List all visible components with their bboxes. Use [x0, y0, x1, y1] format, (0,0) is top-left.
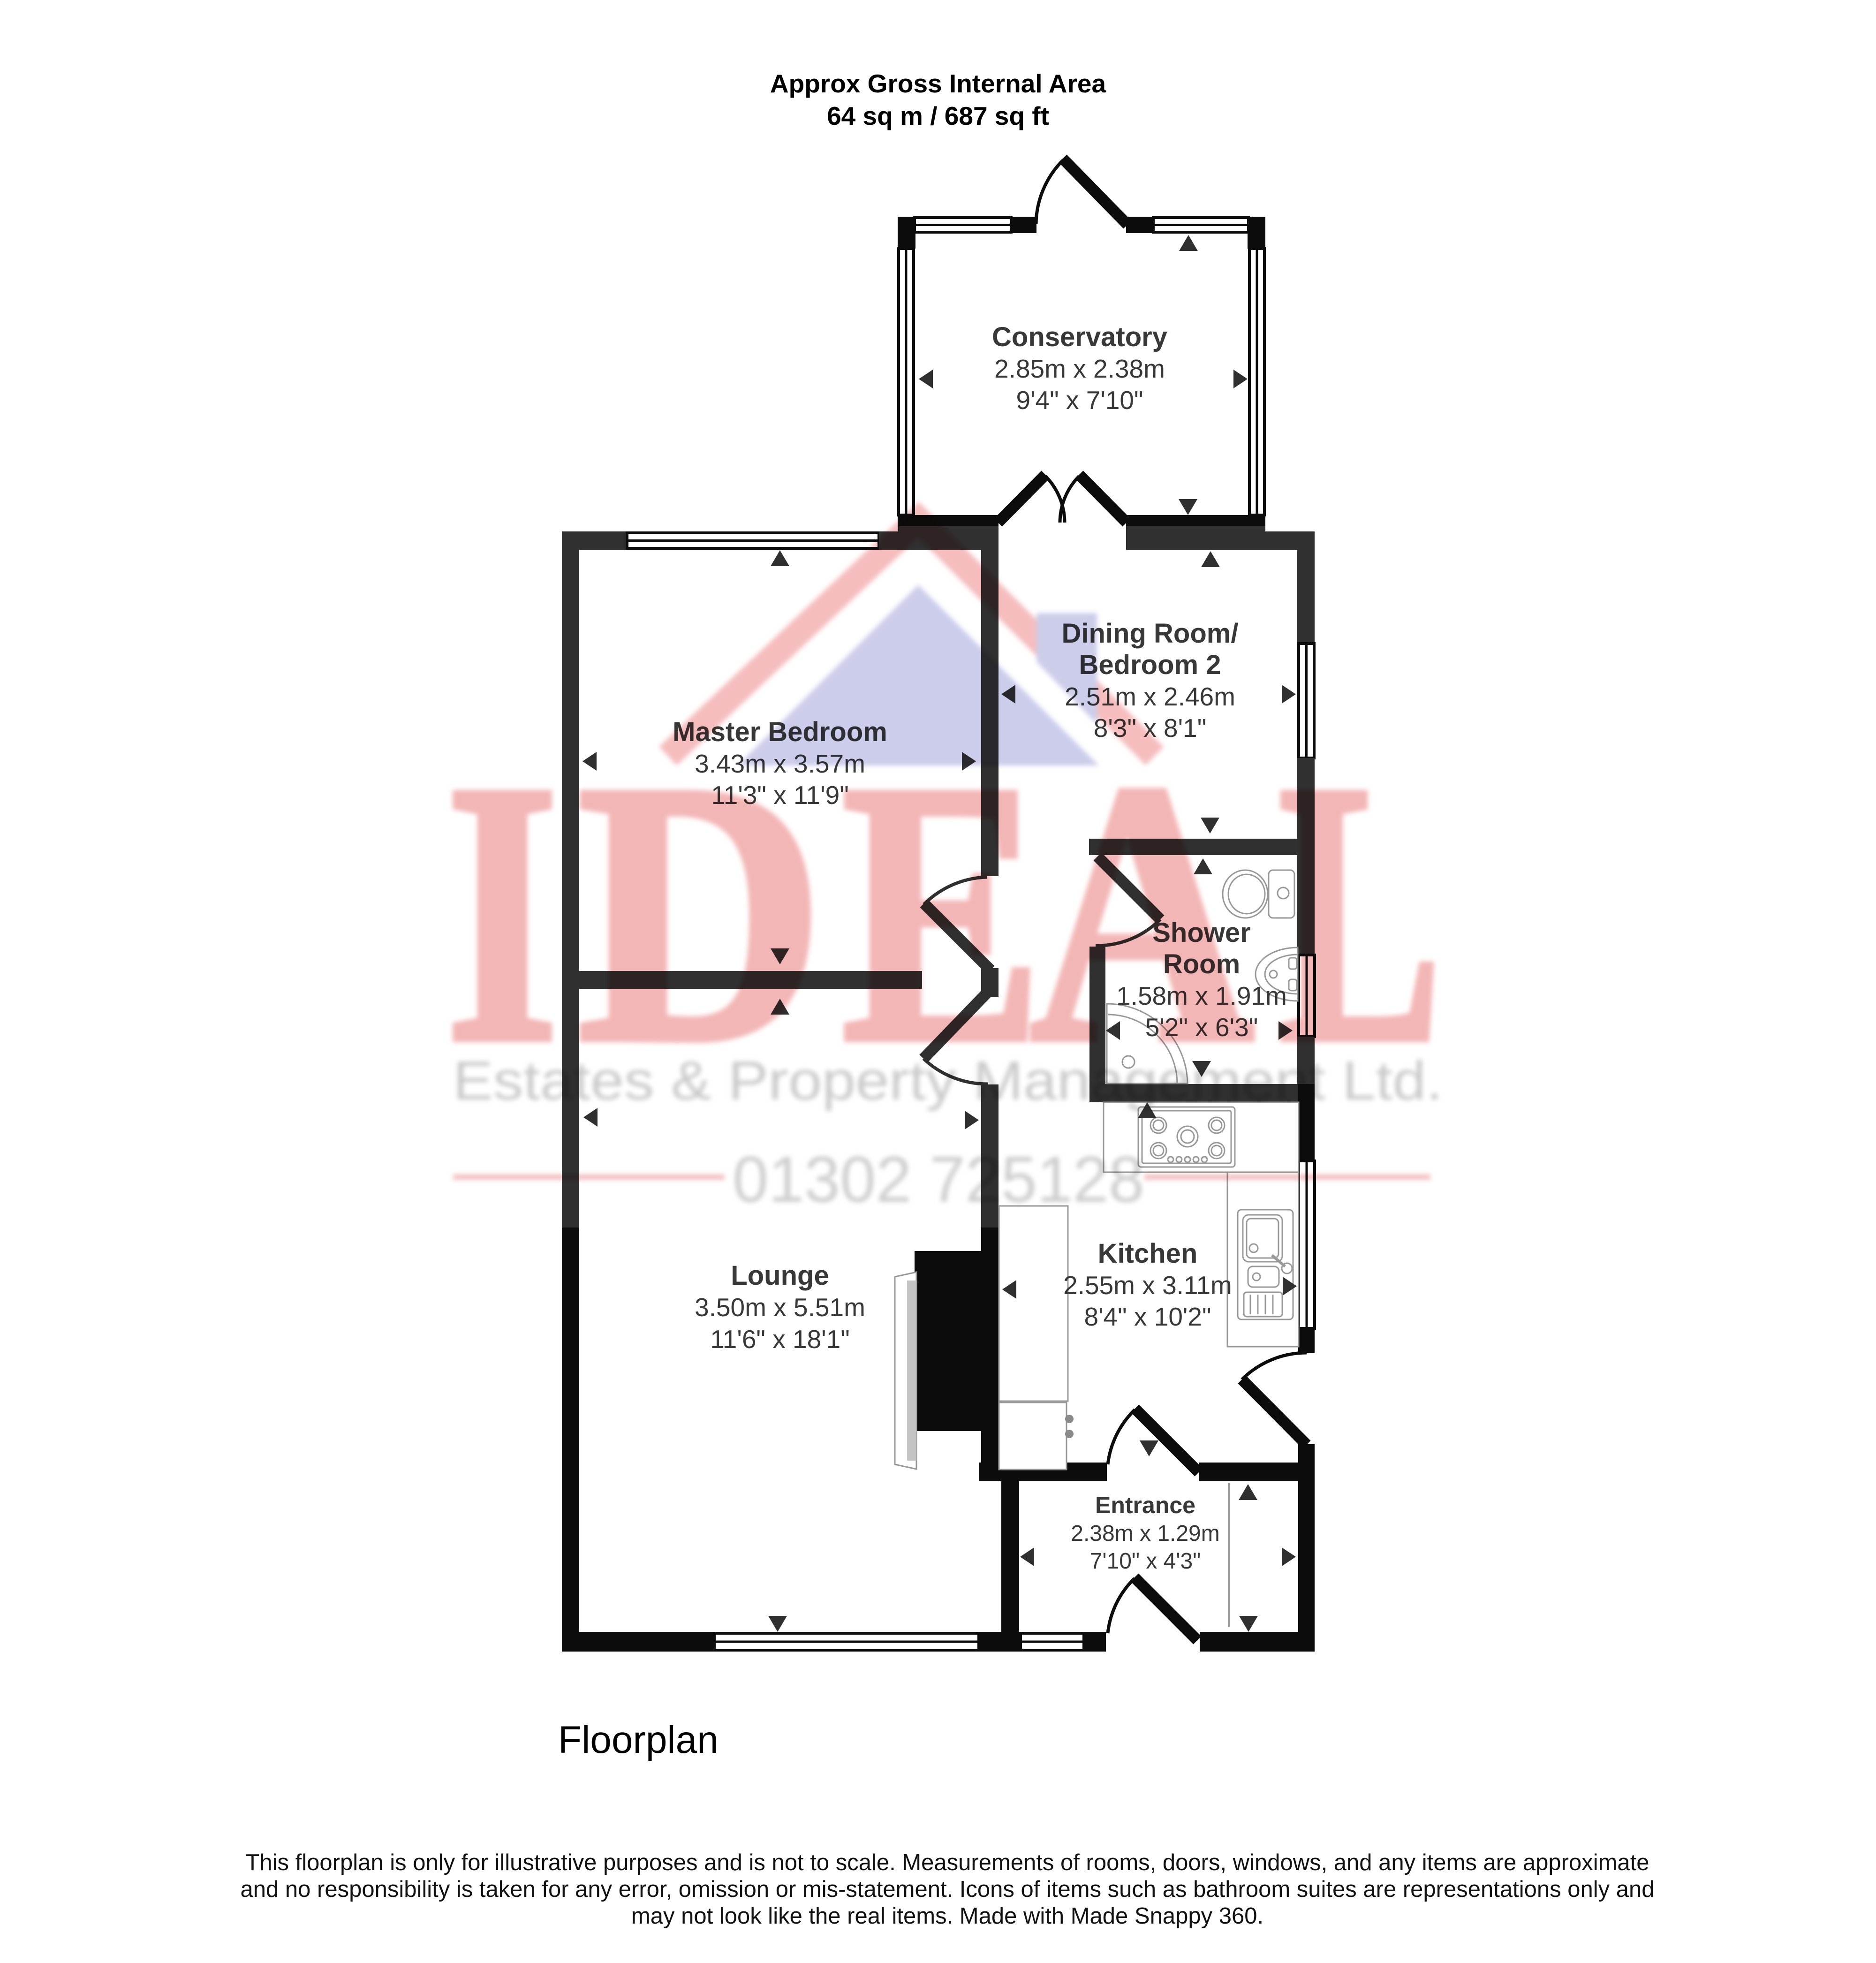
svg-text:may not look like the real ite: may not look like the real items. Made w…: [631, 1903, 1263, 1929]
svg-text:Entrance: Entrance: [1095, 1492, 1195, 1518]
svg-text:11'6" x 18'1": 11'6" x 18'1": [710, 1325, 850, 1354]
svg-text:Approx Gross Internal Area: Approx Gross Internal Area: [770, 69, 1106, 98]
svg-text:2.55m x 3.11m: 2.55m x 3.11m: [1063, 1271, 1232, 1300]
svg-text:Bedroom 2: Bedroom 2: [1079, 650, 1221, 680]
svg-text:7'10" x 4'3": 7'10" x 4'3": [1090, 1549, 1201, 1574]
svg-text:Estates & Property Management: Estates & Property Management Ltd.: [453, 1050, 1443, 1111]
svg-text:and no responsibility is taken: and no responsibility is taken for any e…: [241, 1877, 1655, 1902]
svg-text:This floorplan is only for ill: This floorplan is only for illustrative …: [245, 1850, 1649, 1875]
svg-text:Floorplan: Floorplan: [558, 1719, 719, 1761]
svg-text:2.38m x 1.29m: 2.38m x 1.29m: [1071, 1521, 1219, 1546]
svg-text:01302 725128: 01302 725128: [733, 1143, 1144, 1216]
svg-text:9'4" x 7'10": 9'4" x 7'10": [1016, 386, 1143, 415]
svg-text:8'4" x 10'2": 8'4" x 10'2": [1084, 1302, 1211, 1331]
svg-text:Conservatory: Conservatory: [992, 322, 1167, 352]
svg-text:3.50m x 5.51m: 3.50m x 5.51m: [695, 1293, 865, 1322]
svg-text:Kitchen: Kitchen: [1098, 1238, 1198, 1269]
svg-text:2.85m x 2.38m: 2.85m x 2.38m: [994, 354, 1165, 383]
svg-text:64 sq m / 687 sq ft: 64 sq m / 687 sq ft: [827, 101, 1049, 130]
svg-text:Lounge: Lounge: [731, 1260, 829, 1291]
